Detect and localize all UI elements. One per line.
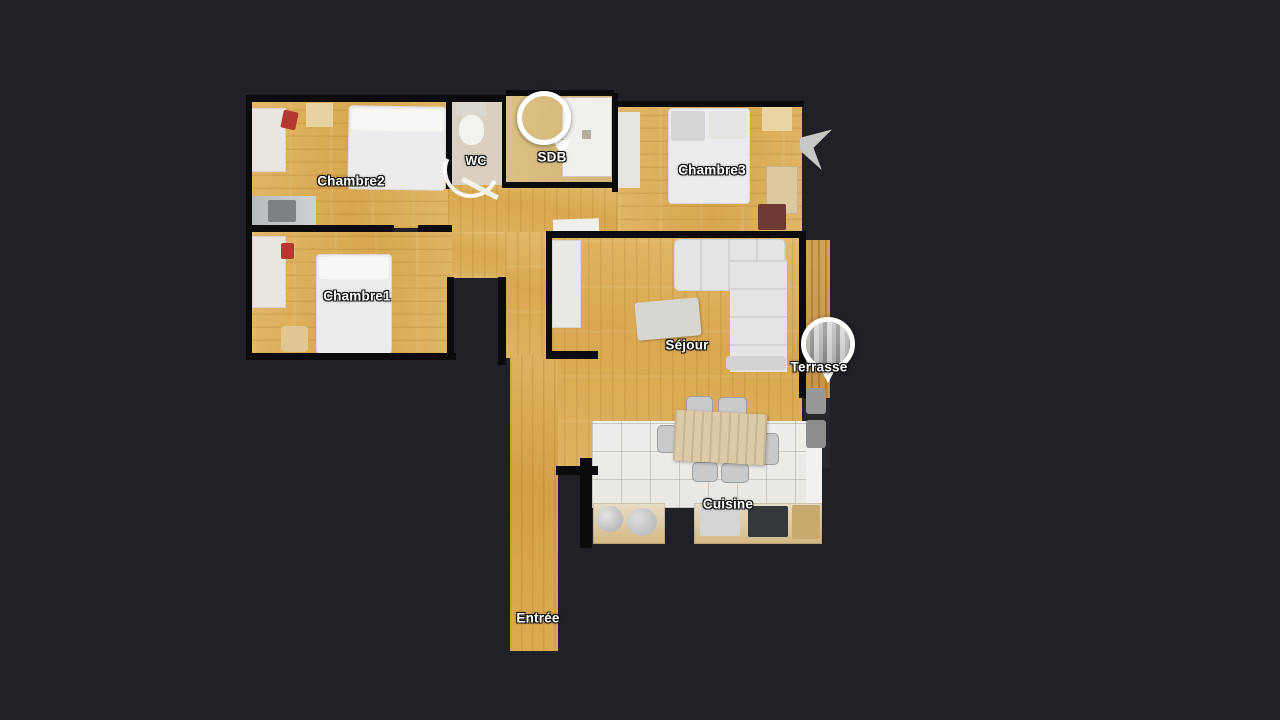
cuisine-stove [748,506,788,537]
wall-sdb-top [506,90,614,96]
chambre2-pillow [351,108,443,132]
room-label-chambre1: Chambre1 [323,289,391,304]
sdb-shower-drain [582,130,591,139]
chambre3-wardrobe-mirror [618,112,640,188]
wall-sejour-top [546,231,806,238]
chambre1-stool [281,326,308,352]
chambre1-bed [316,254,392,354]
cuisine-chair [721,463,749,483]
chambre2-laptop [268,200,296,222]
cuisine-pot [627,508,657,536]
chambre1-red-object [281,243,294,259]
chambre1-pillow [319,257,389,279]
room-label-cuisine: Cuisine [703,497,753,512]
chambre2-nightstand [306,103,333,127]
pano-preview-image [522,96,566,140]
room-floor-entree[interactable] [510,355,558,651]
wall-cuisine-left [580,458,592,548]
wall-chambre1-bottom [246,353,456,360]
cuisine-cabinet [792,505,820,539]
room-label-terrasse: Terrasse [791,360,848,375]
chambre3-curtain [800,124,832,170]
room-label-entree: Entrée [516,611,559,626]
chambre3-red-object [758,204,786,230]
wc-toilet-bowl [459,115,484,145]
cuisine-chair [692,462,718,482]
chambre2-dresser [250,108,286,172]
cuisine-pot [597,506,623,532]
wall-chambre2-chambre1-left [246,225,394,232]
room-label-sejour: Séjour [665,338,708,353]
cuisine-counter-left [593,503,665,544]
wall-chambre3-top [616,101,804,107]
room-label-sdb: SDB [537,150,566,165]
wall-wc-sdb [502,95,506,185]
wall-sejour-left [546,236,552,356]
chambre3-nightstand [762,107,792,131]
wall-sejour-corner [546,351,598,359]
sejour-coffee-table [634,297,701,340]
room-label-chambre2: Chambre2 [317,174,385,189]
wall-chambre1-right [447,277,454,360]
floorplan-viewer: Chambre2 WC SDB Chambre3 Chambre1 Séjour… [0,0,1280,720]
wall-sdb-bottom [502,182,614,188]
terrasse-chair-1 [806,388,826,414]
corridor-floor[interactable] [505,232,550,358]
chambre3-pillow-left [671,111,705,141]
wall-entree-left [498,277,506,365]
wall-sdb-right [612,93,618,192]
chambre3-bed [668,108,750,204]
pano-marker-ring [517,91,571,145]
sejour-sofa-chaise [726,356,786,370]
cuisine-dining-table [673,410,768,466]
room-label-chambre3: Chambre3 [678,163,746,178]
hallway-floor-door[interactable] [448,232,505,278]
room-label-wc: WC [465,154,486,168]
chambre3-pillow-right [709,111,747,139]
sejour-cabinet [552,240,581,328]
chambre2-desk [250,196,316,228]
wc-toilet-tank [456,101,486,116]
wall-top-left [246,95,506,102]
terrasse-chair-2 [806,420,826,448]
wall-chambre2-chambre1-right [418,225,452,232]
